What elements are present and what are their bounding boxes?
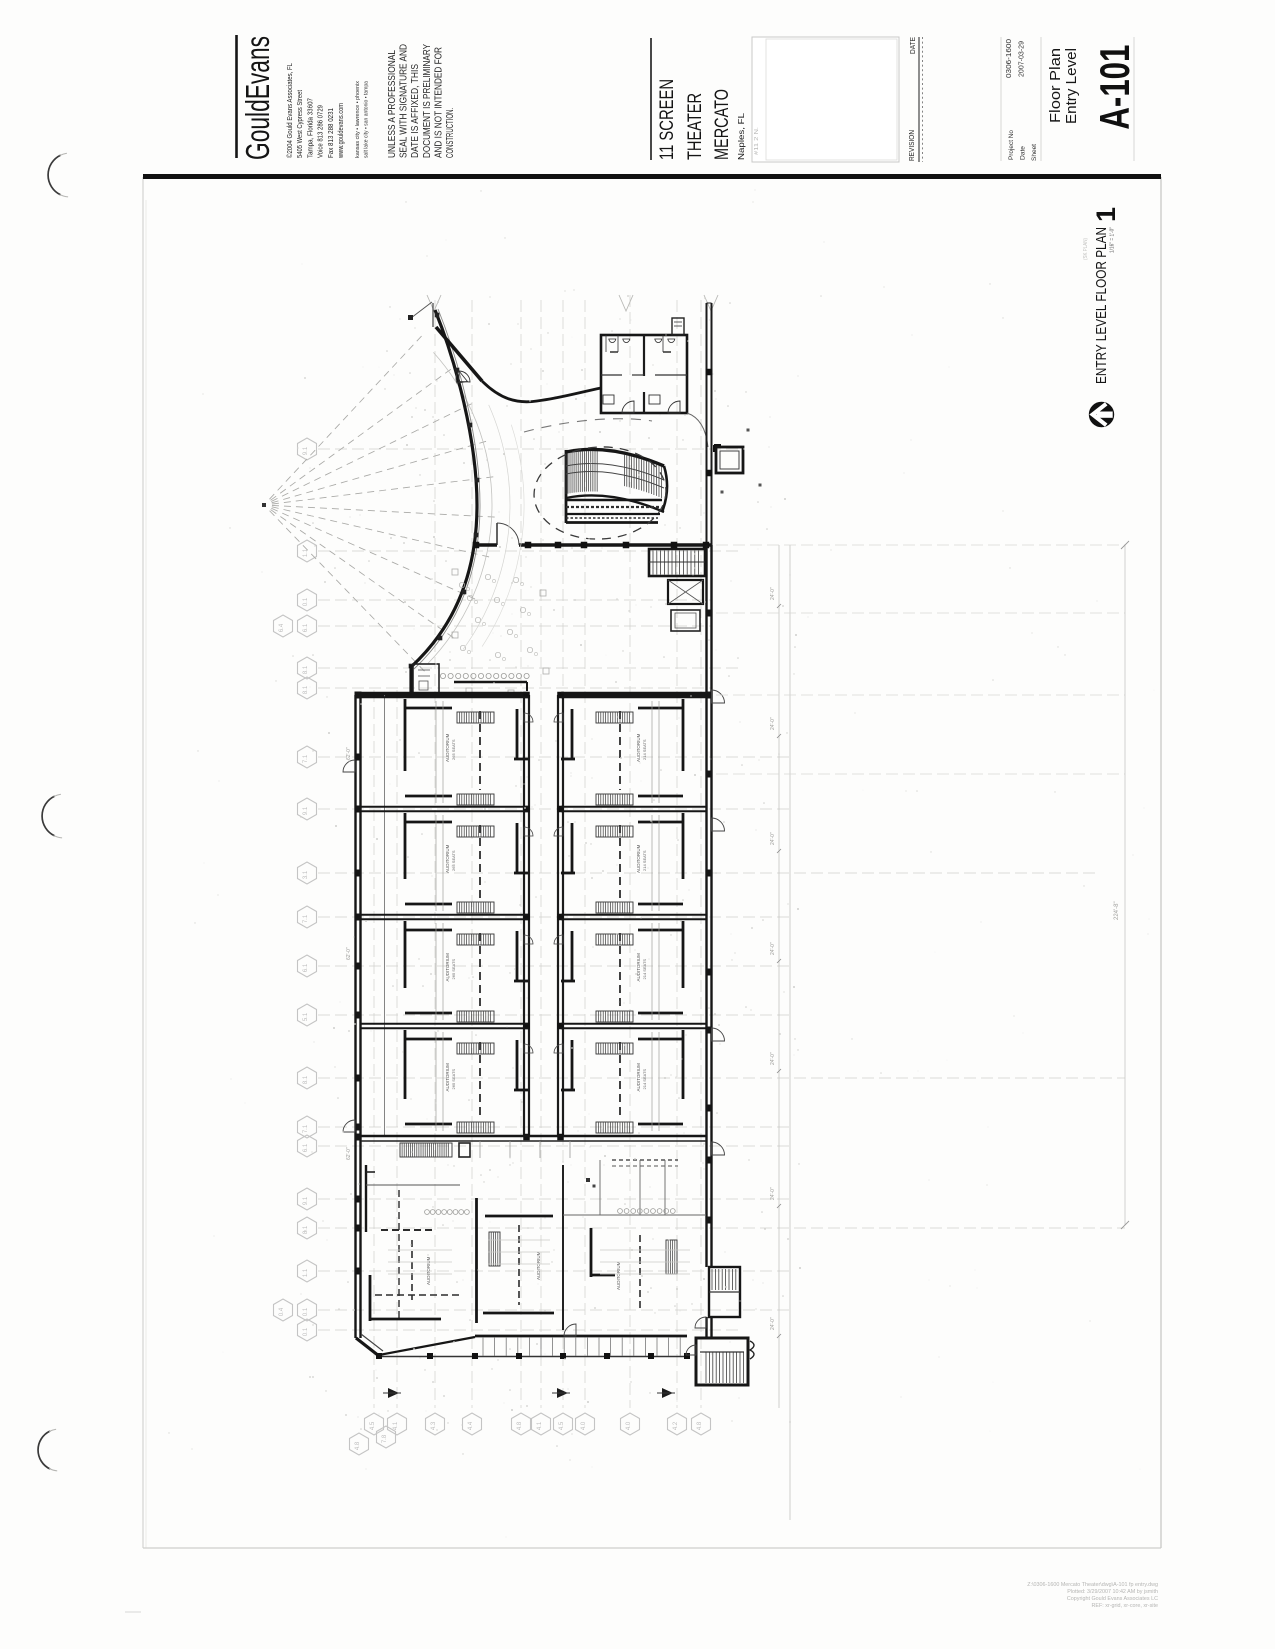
svg-text:4.5: 4.5: [559, 1421, 565, 1430]
svg-text:6.1: 6.1: [303, 963, 309, 972]
svg-text:AUDITORIUM: AUDITORIUM: [636, 844, 641, 873]
svg-text:265 SEATS: 265 SEATS: [451, 850, 456, 871]
svg-text:24'-0": 24'-0": [770, 942, 776, 955]
svg-text:Sheet: Sheet: [1031, 144, 1038, 161]
svg-text:9.1: 9.1: [303, 1196, 309, 1205]
svg-text:24'-0": 24'-0": [770, 1052, 776, 1065]
svg-text:AUDITORIUM: AUDITORIUM: [426, 1256, 431, 1285]
svg-text:THEATER: THEATER: [684, 93, 706, 160]
svg-text:Tampa, Florida 33607: Tampa, Florida 33607: [307, 98, 314, 158]
svg-text:1/16" = 1'-0": 1/16" = 1'-0": [1110, 227, 1116, 253]
svg-text:7.1: 7.1: [303, 1124, 309, 1133]
svg-text:AUDITORIUM: AUDITORIUM: [445, 733, 450, 762]
svg-text:A-101: A-101: [1091, 45, 1138, 130]
svg-text:214 SEATS: 214 SEATS: [642, 1069, 647, 1090]
svg-text:0.1: 0.1: [303, 1307, 309, 1316]
svg-text:AUDITORIUM: AUDITORIUM: [636, 733, 641, 762]
svg-text:#11 2 N.: #11 2 N.: [754, 127, 760, 155]
svg-text:Date: Date: [1020, 146, 1027, 160]
svg-text:©2004 Gould Evans Associates,: ©2004 Gould Evans Associates, FL: [286, 63, 294, 158]
svg-text:MERCATO: MERCATO: [711, 89, 733, 160]
svg-text:UNLESS A PROFESSIONAL: UNLESS A PROFESSIONAL: [387, 50, 398, 158]
svg-text:DATE: DATE: [908, 37, 917, 54]
svg-text:AUDITORIUM: AUDITORIUM: [445, 844, 450, 873]
svg-text:Floor Plan: Floor Plan: [1048, 48, 1064, 123]
svg-text:4.0: 4.0: [626, 1421, 632, 1430]
svg-text:0306-1600: 0306-1600: [1006, 39, 1013, 78]
svg-text:214 SEATS: 214 SEATS: [642, 739, 647, 760]
svg-text:8.1: 8.1: [303, 1225, 309, 1234]
svg-text:8.1: 8.1: [303, 665, 309, 674]
svg-text:1: 1: [1091, 207, 1121, 222]
svg-text:7.8: 7.8: [382, 1434, 388, 1443]
svg-text:Plotted: 3/29/2007 10:42 AM b: Plotted: 3/29/2007 10:42 AM by jsmith: [1067, 1589, 1158, 1595]
svg-text:5.1: 5.1: [303, 1012, 309, 1021]
svg-text:7.1: 7.1: [303, 754, 309, 763]
svg-text:7.1: 7.1: [303, 914, 309, 923]
svg-text:GouldEvans: GouldEvans: [239, 36, 276, 160]
svg-text:265 SEATS: 265 SEATS: [451, 959, 456, 980]
svg-text:224'-8": 224'-8": [1114, 901, 1120, 920]
svg-text:Copyright Gould Evans Associat: Copyright Gould Evans Associates LC: [1067, 1596, 1158, 1602]
svg-text:62'-0": 62'-0": [346, 1147, 352, 1160]
svg-text:AUDITORIUM: AUDITORIUM: [445, 1063, 450, 1092]
svg-text:Voice 813 286 0729: Voice 813 286 0729: [318, 105, 325, 158]
svg-text:Project No: Project No: [1008, 130, 1015, 160]
svg-text:265 SEATS: 265 SEATS: [451, 1069, 456, 1090]
svg-text:Naples, FL: Naples, FL: [736, 113, 746, 160]
svg-text:0.1: 0.1: [303, 1327, 309, 1336]
svg-text:Entry Level: Entry Level: [1064, 48, 1080, 124]
svg-text:24'-0": 24'-0": [770, 1317, 776, 1330]
svg-text:4.1: 4.1: [537, 1421, 543, 1430]
svg-text:3.1: 3.1: [303, 870, 309, 879]
svg-text:salt lake city • san antonio •: salt lake city • san antonio • tampa: [364, 80, 370, 158]
svg-text:24'-0": 24'-0": [770, 1187, 776, 1200]
svg-text:214 SEATS: 214 SEATS: [642, 850, 647, 871]
svg-text:214 SEATS: 214 SEATS: [642, 959, 647, 980]
svg-text:11 SCREEN: 11 SCREEN: [656, 79, 678, 160]
svg-text:4.3: 4.3: [431, 1421, 437, 1430]
svg-text:8.1: 8.1: [303, 685, 309, 694]
svg-text:2007-03-29: 2007-03-29: [1019, 41, 1026, 77]
svg-text:1.1: 1.1: [303, 1268, 309, 1277]
svg-text:Z:\0306-1600 Mercato Theater\d: Z:\0306-1600 Mercato Theater\dwg\A-101 f…: [1027, 1582, 1158, 1588]
svg-text:9.1: 9.1: [303, 446, 309, 455]
svg-text:CONSTRUCTION.: CONSTRUCTION.: [445, 108, 456, 158]
svg-text:24'-0": 24'-0": [770, 717, 776, 730]
svg-text:6.4: 6.4: [279, 623, 285, 632]
svg-text:4.8: 4.8: [517, 1421, 523, 1430]
svg-text:62'-0": 62'-0": [346, 947, 352, 960]
svg-text:AUDITORIUM: AUDITORIUM: [616, 1261, 621, 1290]
svg-text:4.0: 4.0: [581, 1421, 587, 1430]
svg-text:24'-0": 24'-0": [770, 587, 776, 600]
svg-text:AUDITORIUM: AUDITORIUM: [636, 953, 641, 982]
svg-text:4.8: 4.8: [697, 1421, 703, 1430]
svg-text:REF: xr-grid, xr-core, xr-site: REF: xr-grid, xr-core, xr-site: [1092, 1603, 1159, 1609]
svg-text:4.2: 4.2: [673, 1421, 679, 1430]
svg-text:8.1: 8.1: [303, 1075, 309, 1084]
svg-text:0.4: 0.4: [279, 1307, 285, 1316]
svg-text:kansas city • lawrence • phoen: kansas city • lawrence • phoenix: [355, 81, 361, 158]
svg-text:DATE IS AFFIXED, THIS: DATE IS AFFIXED, THIS: [410, 64, 421, 158]
svg-text:265 SEATS: 265 SEATS: [451, 739, 456, 760]
svg-text:REVISION: REVISION: [907, 130, 916, 161]
svg-text:Fax 813 288 0231: Fax 813 288 0231: [328, 108, 335, 158]
svg-text:0.1: 0.1: [303, 597, 309, 606]
svg-text:ENTRY LEVEL FLOOR PLAN: ENTRY LEVEL FLOOR PLAN: [1093, 227, 1110, 384]
svg-text:(SK PLAN): (SK PLAN): [1083, 238, 1089, 260]
svg-text:6.1: 6.1: [303, 1143, 309, 1152]
svg-text:AND IS NOT INTENDED FOR: AND IS NOT INTENDED FOR: [433, 47, 444, 158]
svg-text:5405 West Cypress Street: 5405 West Cypress Street: [297, 90, 304, 158]
svg-text:www.gouldevans.com: www.gouldevans.com: [338, 103, 345, 159]
svg-text:9.1: 9.1: [303, 806, 309, 815]
svg-text:4.1: 4.1: [393, 1421, 399, 1430]
svg-text:4.4: 4.4: [468, 1421, 474, 1430]
svg-text:6.1: 6.1: [303, 623, 309, 632]
svg-text:SEAL WITH SIGNATURE AND: SEAL WITH SIGNATURE AND: [399, 44, 410, 158]
svg-text:1.1: 1.1: [303, 548, 309, 557]
svg-text:DOCUMENT IS PRELIMINARY: DOCUMENT IS PRELIMINARY: [422, 44, 433, 158]
svg-text:24'-0": 24'-0": [770, 832, 776, 845]
svg-text:4.5: 4.5: [370, 1421, 376, 1430]
svg-text:4.8: 4.8: [355, 1441, 361, 1450]
svg-text:AUDITORIUM: AUDITORIUM: [636, 1063, 641, 1092]
svg-text:62'-0": 62'-0": [346, 747, 352, 760]
svg-text:AUDITORIUM: AUDITORIUM: [536, 1251, 541, 1280]
